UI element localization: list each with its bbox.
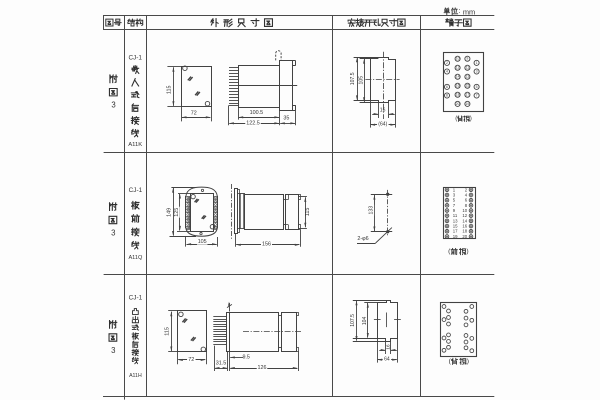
svg-text:105: 105 [198,239,207,245]
svg-text:7: 7 [476,94,478,98]
svg-text:A11K: A11K [128,142,142,148]
svg-text:CJ-1: CJ-1 [129,295,143,302]
svg-text:13: 13 [465,75,469,79]
svg-text:2-φ6: 2-φ6 [357,236,368,242]
svg-text:15: 15 [465,84,469,88]
svg-text:20: 20 [456,102,460,106]
svg-text:8: 8 [446,94,448,98]
svg-text:A11Q: A11Q [128,255,143,261]
svg-text:115: 115 [167,86,173,95]
svg-text:1: 1 [476,61,478,65]
svg-text:107.5: 107.5 [350,72,356,85]
svg-text:104: 104 [362,316,368,325]
svg-text:17: 17 [465,93,469,97]
svg-text::: : [458,8,460,15]
svg-text:100.5: 100.5 [250,110,264,116]
svg-text:64: 64 [384,357,390,363]
svg-text:35: 35 [283,115,289,121]
svg-text:9.5: 9.5 [242,355,250,361]
svg-text:72: 72 [191,111,197,117]
svg-text:A11H: A11H [129,373,142,379]
svg-text:6: 6 [446,85,448,89]
svg-text:122.5: 122.5 [246,120,260,126]
svg-text:CJ-1: CJ-1 [128,55,142,62]
svg-text:9: 9 [466,57,468,61]
svg-text:10: 10 [456,57,460,61]
svg-text:3: 3 [111,228,115,237]
svg-text:2: 2 [446,61,448,65]
svg-text:115: 115 [165,327,171,336]
svg-text:4: 4 [446,70,448,74]
svg-text:72: 72 [188,357,194,363]
svg-text:126: 126 [258,365,267,371]
svg-text:CJ-1: CJ-1 [129,187,143,194]
svg-text:11: 11 [466,66,470,70]
svg-text:115: 115 [305,208,311,217]
svg-text:16: 16 [456,84,460,88]
svg-text:107.5: 107.5 [350,314,356,327]
svg-text:): ) [467,358,469,365]
svg-text:19: 19 [453,234,458,239]
svg-text:20: 20 [462,234,467,239]
svg-text:16: 16 [380,107,386,113]
svg-text:3: 3 [111,101,115,110]
svg-text:125: 125 [174,208,180,217]
svg-text:3: 3 [111,346,115,355]
svg-text:156: 156 [262,242,271,248]
svg-text:5: 5 [476,85,478,89]
svg-text:): ) [466,248,468,255]
svg-text:): ) [470,115,472,122]
svg-text:16: 16 [386,344,391,350]
svg-text:31.5: 31.5 [216,361,227,367]
svg-text:105: 105 [359,76,365,85]
svg-text:19: 19 [465,102,469,106]
svg-text:mm: mm [463,7,475,16]
svg-text:133: 133 [369,206,375,215]
svg-text:14: 14 [456,75,460,79]
svg-text:3: 3 [476,70,478,74]
svg-text:18: 18 [456,93,460,97]
svg-text:12: 12 [456,66,460,70]
svg-text:(64): (64) [378,122,387,128]
svg-text:149: 149 [167,208,173,217]
